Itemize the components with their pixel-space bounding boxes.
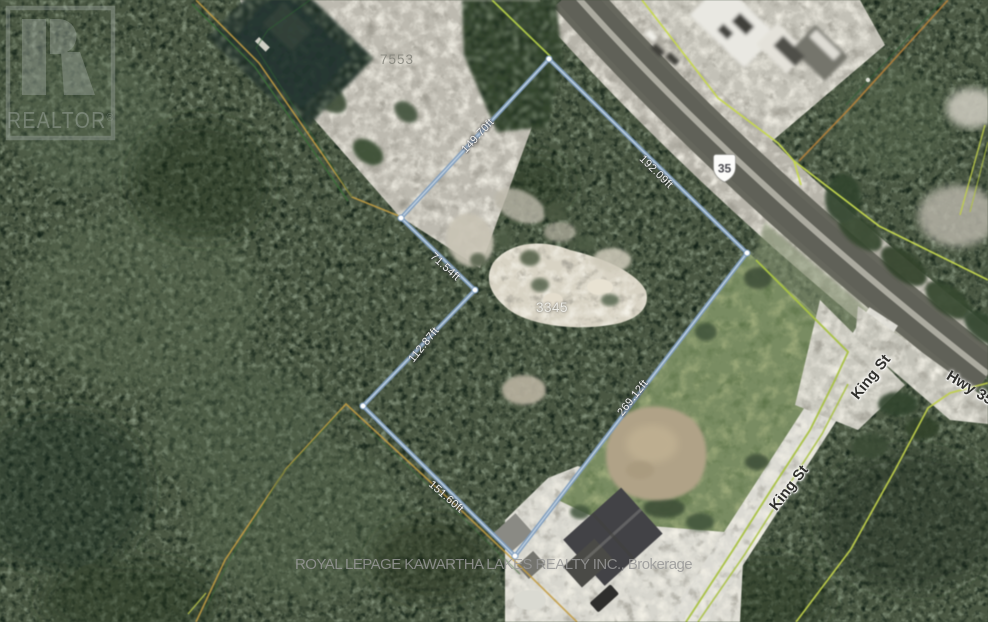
svg-text:35: 35 xyxy=(718,162,732,176)
